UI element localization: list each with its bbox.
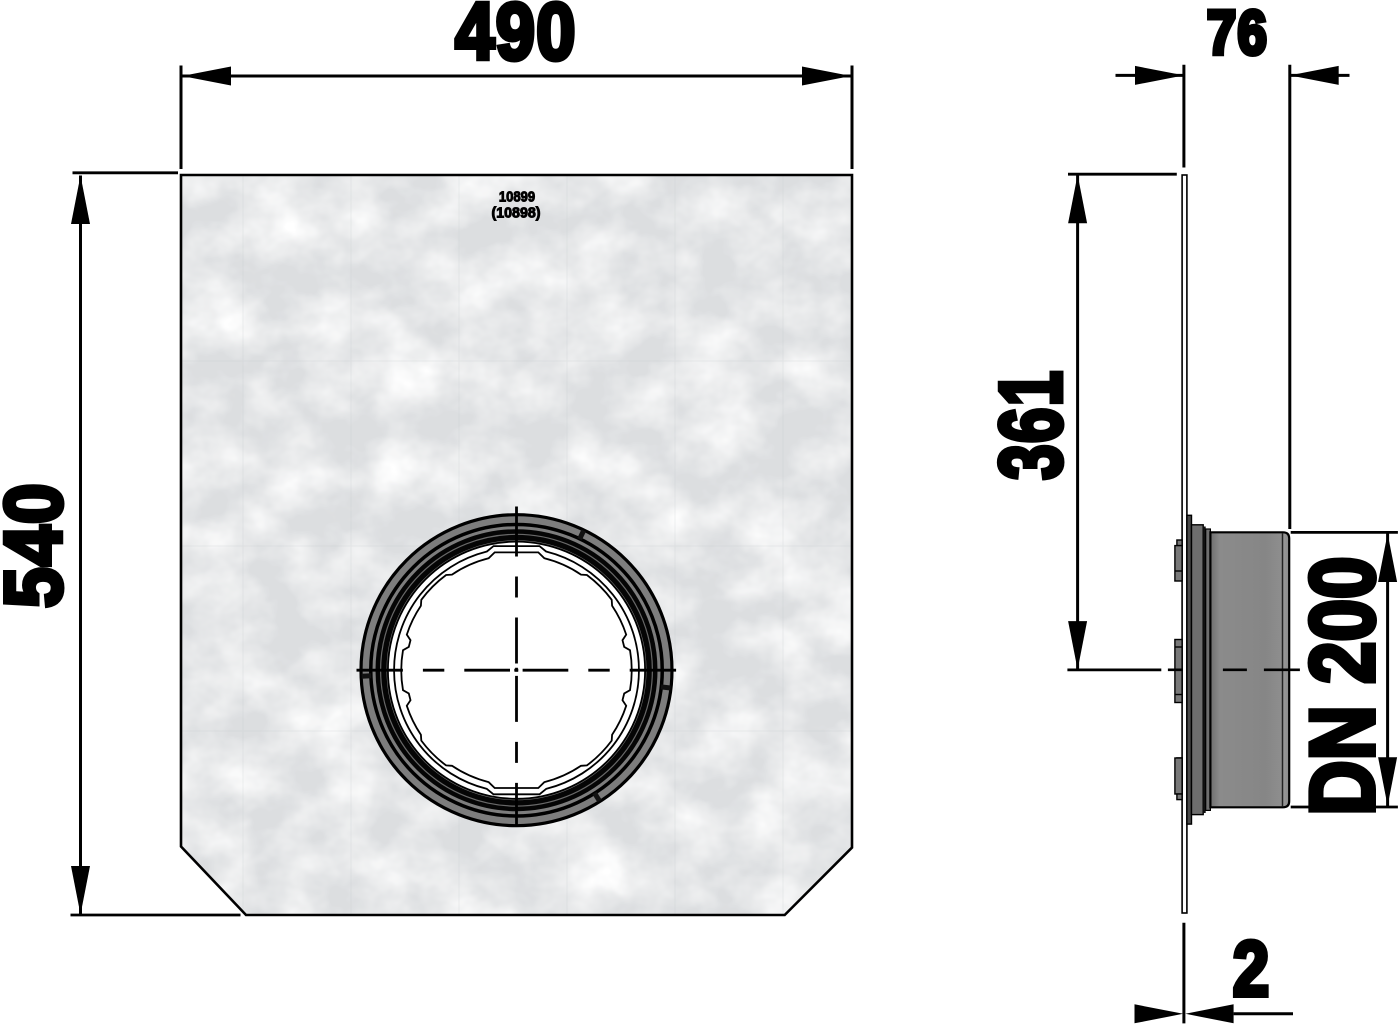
svg-text:361: 361 — [982, 370, 1080, 480]
svg-text:10899: 10899 — [499, 188, 535, 205]
svg-text:490: 490 — [455, 0, 576, 77]
svg-text:DN 200: DN 200 — [1291, 556, 1393, 815]
svg-text:(10898): (10898) — [491, 205, 540, 221]
svg-text:540: 540 — [0, 482, 79, 608]
svg-text:76: 76 — [1207, 0, 1268, 68]
svg-text:2: 2 — [1233, 926, 1269, 1013]
